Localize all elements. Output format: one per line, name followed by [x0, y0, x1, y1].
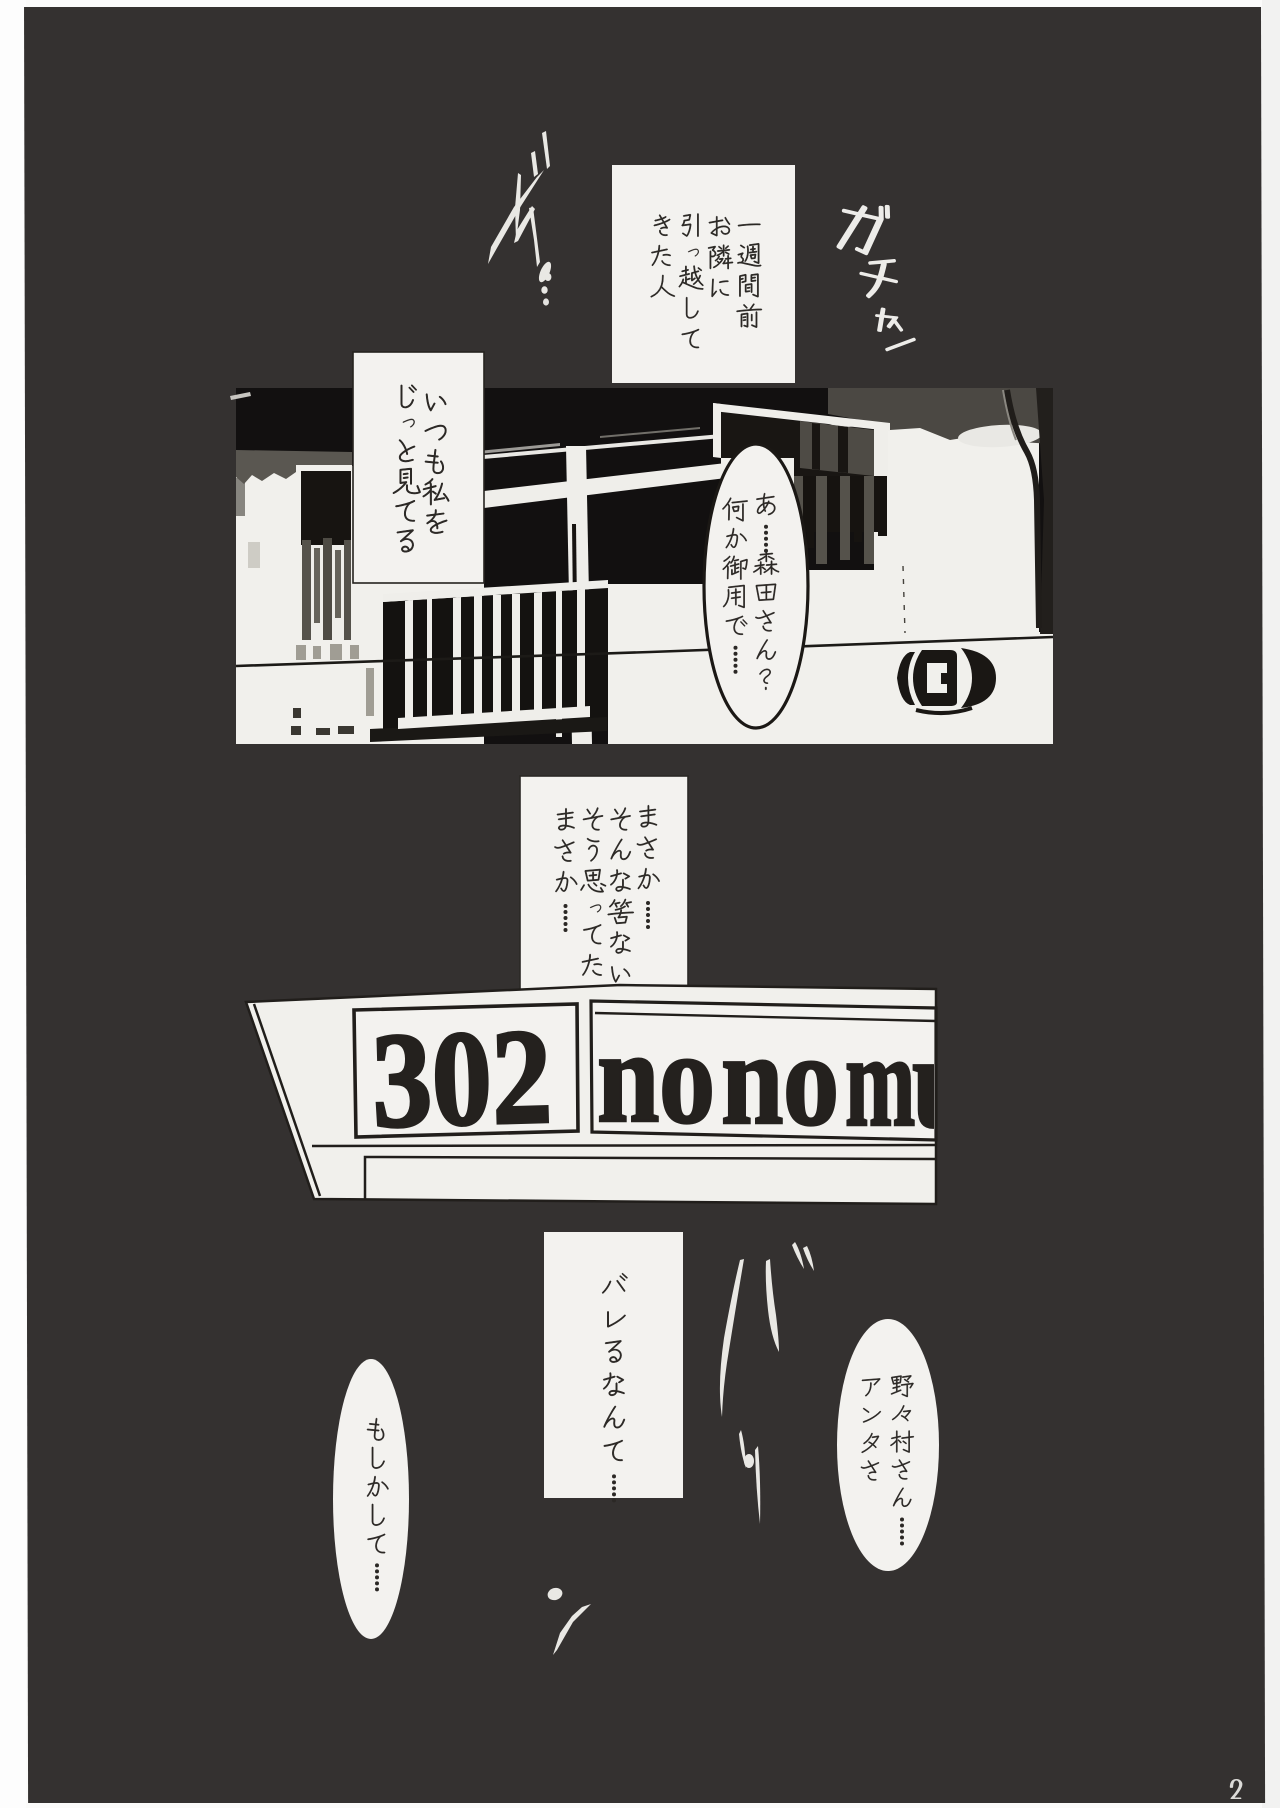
svg-text:n: n — [721, 1007, 783, 1152]
svg-text:n: n — [597, 1005, 659, 1150]
svg-text:o: o — [659, 1006, 715, 1151]
svg-text:m: m — [845, 1007, 915, 1154]
svg-text:o: o — [783, 1008, 839, 1153]
svg-text:302: 302 — [370, 1001, 554, 1157]
